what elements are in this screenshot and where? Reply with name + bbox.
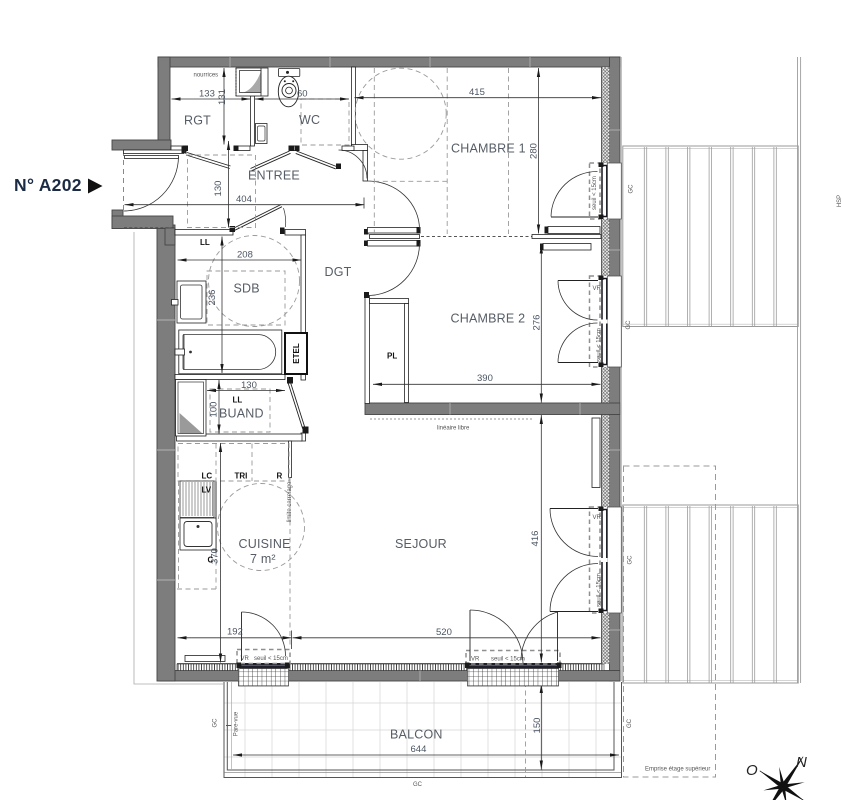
svg-text:LL: LL — [233, 396, 243, 405]
svg-text:SEJOUR: SEJOUR — [395, 537, 447, 551]
svg-text:CHAMBRE 1: CHAMBRE 1 — [451, 142, 526, 156]
svg-text:208: 208 — [237, 250, 253, 261]
svg-text:N: N — [796, 754, 807, 771]
svg-text:seuil < 15cm: seuil < 15cm — [597, 573, 603, 607]
svg-text:390: 390 — [477, 373, 493, 384]
svg-text:GC: GC — [628, 555, 634, 565]
svg-text:R: R — [277, 472, 283, 481]
svg-text:ETEL: ETEL — [292, 343, 301, 364]
svg-text:133: 133 — [199, 89, 215, 100]
svg-text:Pare-vue: Pare-vue — [234, 711, 240, 736]
svg-text:60: 60 — [297, 89, 308, 100]
svg-text:seuil < 15cm: seuil < 15cm — [597, 328, 603, 362]
svg-text:416: 416 — [530, 531, 541, 547]
svg-text:ENTREE: ENTREE — [248, 169, 300, 183]
svg-text:BALCON: BALCON — [390, 728, 443, 742]
svg-text:VR: VR — [593, 286, 602, 292]
svg-text:GC: GC — [629, 184, 635, 194]
svg-text:131: 131 — [217, 89, 228, 105]
svg-text:130: 130 — [241, 380, 257, 391]
svg-text:RGT: RGT — [184, 114, 211, 128]
svg-text:seuil < 15cm: seuil < 15cm — [592, 176, 598, 210]
svg-text:GC: GC — [626, 320, 632, 330]
svg-text:GC: GC — [213, 718, 219, 728]
svg-text:limite carrelage: limite carrelage — [287, 481, 293, 522]
svg-text:GC: GC — [413, 782, 423, 788]
svg-text:100: 100 — [209, 402, 220, 418]
svg-text:VR: VR — [593, 515, 602, 521]
svg-text:GC: GC — [627, 718, 633, 728]
svg-text:N° A202: N° A202 — [14, 175, 82, 195]
svg-text:HSP: HSP — [837, 195, 842, 207]
svg-text:seuil < 15cm: seuil < 15cm — [491, 657, 525, 663]
svg-text:280: 280 — [529, 143, 540, 159]
svg-text:644: 644 — [411, 744, 427, 755]
svg-text:404: 404 — [236, 194, 252, 205]
svg-text:nourrices: nourrices — [194, 73, 219, 79]
svg-text:LV: LV — [202, 486, 212, 495]
svg-text:O: O — [746, 762, 758, 779]
svg-text:192: 192 — [227, 627, 243, 638]
svg-text:520: 520 — [436, 627, 452, 638]
svg-text:276: 276 — [532, 315, 543, 331]
svg-text:BUAND: BUAND — [219, 407, 264, 421]
svg-text:CHAMBRE 2: CHAMBRE 2 — [451, 312, 526, 326]
svg-text:seuil < 15cm: seuil < 15cm — [254, 656, 288, 662]
svg-text:CUISINE: CUISINE — [239, 537, 291, 551]
svg-text:SDB: SDB — [234, 282, 260, 296]
svg-text:PL: PL — [387, 352, 397, 361]
svg-text:415: 415 — [469, 87, 485, 98]
svg-text:DGT: DGT — [325, 265, 352, 279]
svg-text:130: 130 — [213, 181, 224, 197]
svg-text:150: 150 — [532, 718, 543, 734]
svg-text:LC: LC — [202, 472, 213, 481]
svg-text:VR: VR — [471, 657, 480, 663]
svg-text:C: C — [208, 556, 214, 565]
svg-text:linéaire libre: linéaire libre — [437, 426, 470, 432]
svg-text:236: 236 — [207, 290, 218, 306]
svg-text:LL: LL — [200, 238, 210, 247]
svg-text:Emprise étage supérieur: Emprise étage supérieur — [645, 767, 710, 773]
svg-text:WC: WC — [299, 113, 320, 127]
svg-text:7 m²: 7 m² — [250, 552, 276, 566]
svg-text:TRI: TRI — [235, 472, 248, 481]
